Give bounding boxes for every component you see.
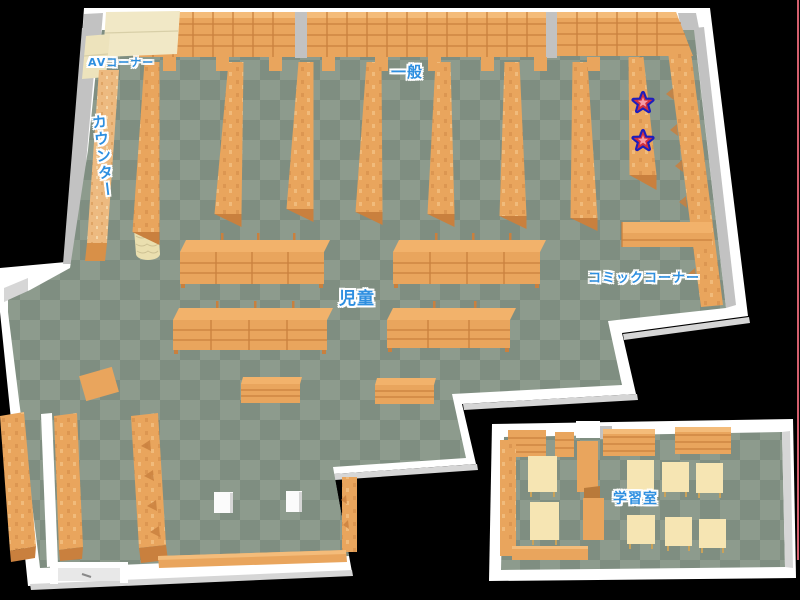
study-table	[696, 463, 723, 498]
reading-bench	[375, 378, 436, 404]
low-shelf	[180, 233, 330, 288]
low-shelf	[173, 301, 333, 354]
stool	[286, 491, 302, 512]
wall-shelf	[341, 477, 357, 552]
study-table	[665, 517, 692, 551]
label-general: 一般	[391, 61, 423, 82]
study-table	[530, 502, 559, 545]
stool	[214, 492, 233, 513]
low-shelf	[393, 233, 546, 288]
label-children: 児童	[339, 284, 375, 309]
wall-shelf-grid-center	[307, 12, 546, 57]
reading-bench	[241, 377, 302, 403]
study-wall-shelf	[508, 430, 574, 457]
label-av-corner: AVコーナー	[88, 54, 154, 70]
study-table	[627, 515, 655, 549]
library-map: AVコーナー 一般 カウンター 児童 コミックコーナー 学習室	[0, 0, 800, 600]
wall-pillar	[546, 12, 557, 58]
study-door-gap	[576, 421, 600, 438]
label-comic-corner: コミックコーナー	[588, 267, 700, 286]
label-study-room: 学習室	[613, 488, 658, 508]
entrance-door	[50, 562, 128, 584]
map-edge-accent	[797, 0, 799, 560]
map-canvas	[0, 0, 800, 600]
low-shelf	[387, 301, 516, 352]
study-table	[699, 519, 726, 553]
study-table	[528, 456, 557, 497]
wall-shelf-grid-right	[557, 12, 693, 56]
wall-pillar	[295, 12, 307, 58]
study-table	[662, 462, 689, 497]
